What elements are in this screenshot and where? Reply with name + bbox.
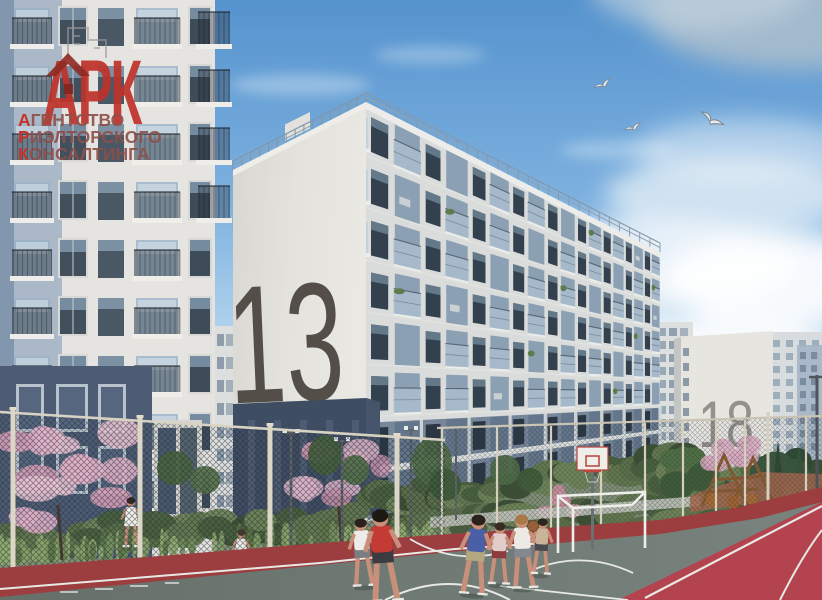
- svg-text:КОНСАЛТИНГА: КОНСАЛТИНГА: [18, 144, 150, 164]
